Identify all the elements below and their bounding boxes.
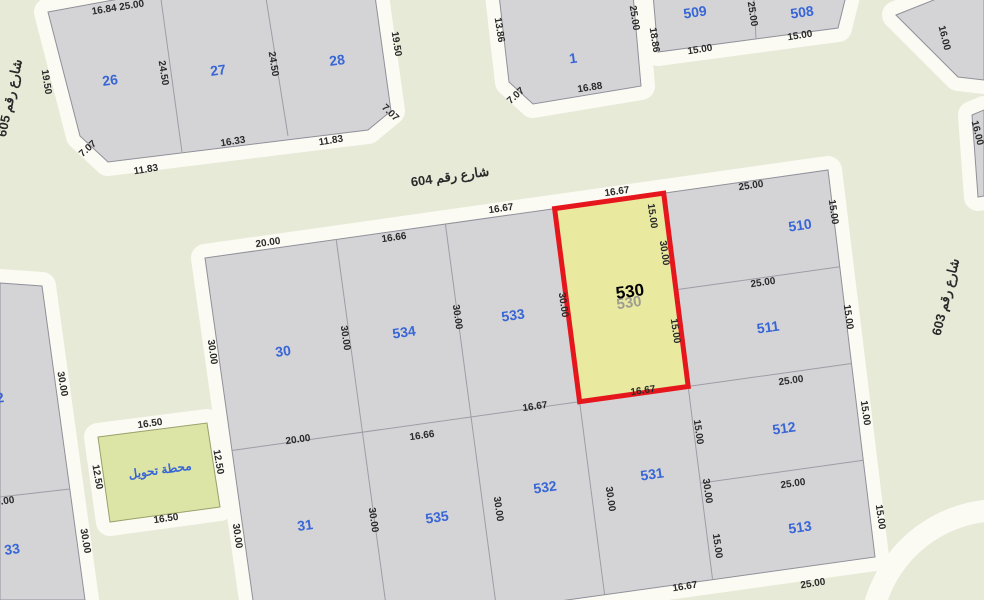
dimension-label: 16.67 [630, 384, 656, 398]
dimension-label: 30.00 [700, 478, 714, 504]
transformer-station-label: محطة تحويل [128, 459, 193, 482]
plot-number-534[interactable]: 534 [391, 322, 416, 341]
dimension-label: 24.50 [266, 51, 281, 77]
plot-number-532[interactable]: 532 [532, 477, 557, 496]
plot-number-27[interactable]: 27 [209, 61, 227, 79]
dimension-label: 30.00 [450, 304, 464, 330]
plot-number-531[interactable]: 531 [639, 464, 664, 483]
dimension-label: 25.00 [750, 276, 776, 290]
dimension-label: 25.00 [745, 1, 760, 27]
plot-number-512[interactable]: 512 [771, 418, 796, 437]
dimension-label: 25.00 [627, 5, 642, 31]
plot-number-26[interactable]: 26 [101, 71, 119, 89]
dimension-label: 25.00 [738, 179, 764, 193]
dimension-label: 20.00 [285, 433, 311, 447]
dimension-label: 15.00 [710, 533, 724, 559]
dimension-label: 25.00 [800, 577, 826, 592]
map-viewport[interactable]: 16.84 25.0019.5024.5024.5019.507.0711.83… [0, 0, 984, 600]
dimension-label: 19.50 [389, 31, 404, 57]
dimension-label: 16.33 [220, 135, 246, 150]
dimension-label: 11.83 [318, 134, 344, 149]
dimension-label: 30.00 [0, 283, 1, 297]
dimension-label: 16.66 [381, 231, 407, 245]
dimension-label: 30.00 [205, 339, 219, 365]
dimension-label: 16.67 [488, 202, 514, 216]
street-name-label: شارع رقم 605 [0, 58, 26, 139]
plot-number-510[interactable]: 510 [787, 215, 812, 234]
dimension-label: 7.07 [505, 85, 527, 106]
plot-number-33[interactable]: 33 [3, 540, 21, 558]
dimension-label: 16.50 [153, 512, 179, 526]
dimension-label: 15.00 [687, 43, 713, 58]
dimension-label: 20.00 [255, 236, 281, 250]
dimension-label: 30.00 [603, 486, 617, 512]
dimension-label: 15.00 [645, 203, 659, 229]
plot-number-533[interactable]: 533 [500, 305, 525, 324]
dimension-label: 16.88 [577, 81, 603, 96]
dimension-label: 30.00 [230, 523, 244, 549]
dimension-label: 15.00 [691, 419, 705, 445]
dimension-label: 30.00 [54, 371, 69, 398]
dimension-label: 16.66 [409, 429, 435, 443]
dimension-label: 15.00 [826, 199, 840, 225]
plot-number-30[interactable]: 30 [274, 342, 292, 360]
dimension-label: 25.00 [778, 374, 804, 388]
plot-number-28[interactable]: 28 [328, 51, 346, 69]
plot-number-32[interactable]: 32 [0, 389, 5, 407]
dimension-label: 7.07 [379, 102, 401, 123]
dimension-label: 16.67 [604, 185, 630, 199]
dimension-label: 16.00 [969, 120, 984, 147]
plot-number-511[interactable]: 511 [756, 318, 781, 337]
plot-number-513[interactable]: 513 [787, 517, 812, 536]
dimension-label: 25.00 [780, 477, 806, 491]
dimension-label: 16.67 [672, 580, 698, 595]
dimension-label: 15.00 [858, 400, 872, 426]
dimension-label: 30.00 [366, 507, 380, 533]
dimension-label: 7.07 [77, 138, 99, 159]
dimension-label: 30.00 [338, 325, 352, 351]
dimension-label: 19.50 [39, 69, 54, 95]
dimension-label: 15.00 [873, 504, 887, 530]
dimension-label: 15.00 [841, 304, 855, 330]
selected-plot-number-530[interactable]: 530 [615, 280, 646, 304]
dimension-label: 20.00 [0, 495, 15, 509]
plot-number-31[interactable]: 31 [296, 516, 314, 534]
dimension-label: 11.83 [133, 163, 159, 178]
dimension-label: 16.67 [522, 400, 548, 414]
dimension-label: 15.00 [668, 318, 682, 344]
dimension-label: 16.50 [137, 417, 163, 431]
dimension-label: 12.50 [89, 464, 104, 491]
street-name-label: شارع رقم 604 [410, 164, 490, 191]
dimension-label: 12.50 [210, 449, 225, 476]
dimension-label: 15.00 [787, 29, 813, 44]
plot-number-535[interactable]: 535 [424, 507, 449, 526]
dimension-label: 16.00 [936, 25, 953, 52]
plot-number-509[interactable]: 509 [682, 2, 707, 21]
plot-number-1[interactable]: 1 [568, 50, 578, 67]
dimension-label: 13.86 [492, 17, 507, 43]
street-name-label: شارع رقم 603 [929, 257, 964, 337]
dimension-label: 18.86 [647, 27, 662, 53]
dimension-label: 30.00 [556, 292, 570, 318]
plot-number-508[interactable]: 508 [789, 2, 814, 21]
dimension-label: 24.50 [156, 60, 171, 86]
dimension-label: 16.84 25.00 [91, 0, 145, 18]
dimension-label: 30.00 [491, 496, 505, 522]
dimension-label: 30.00 [657, 240, 671, 266]
map-labels-layer: 16.84 25.0019.5024.5024.5019.507.0711.83… [0, 0, 984, 600]
dimension-label: 30.00 [77, 528, 92, 555]
